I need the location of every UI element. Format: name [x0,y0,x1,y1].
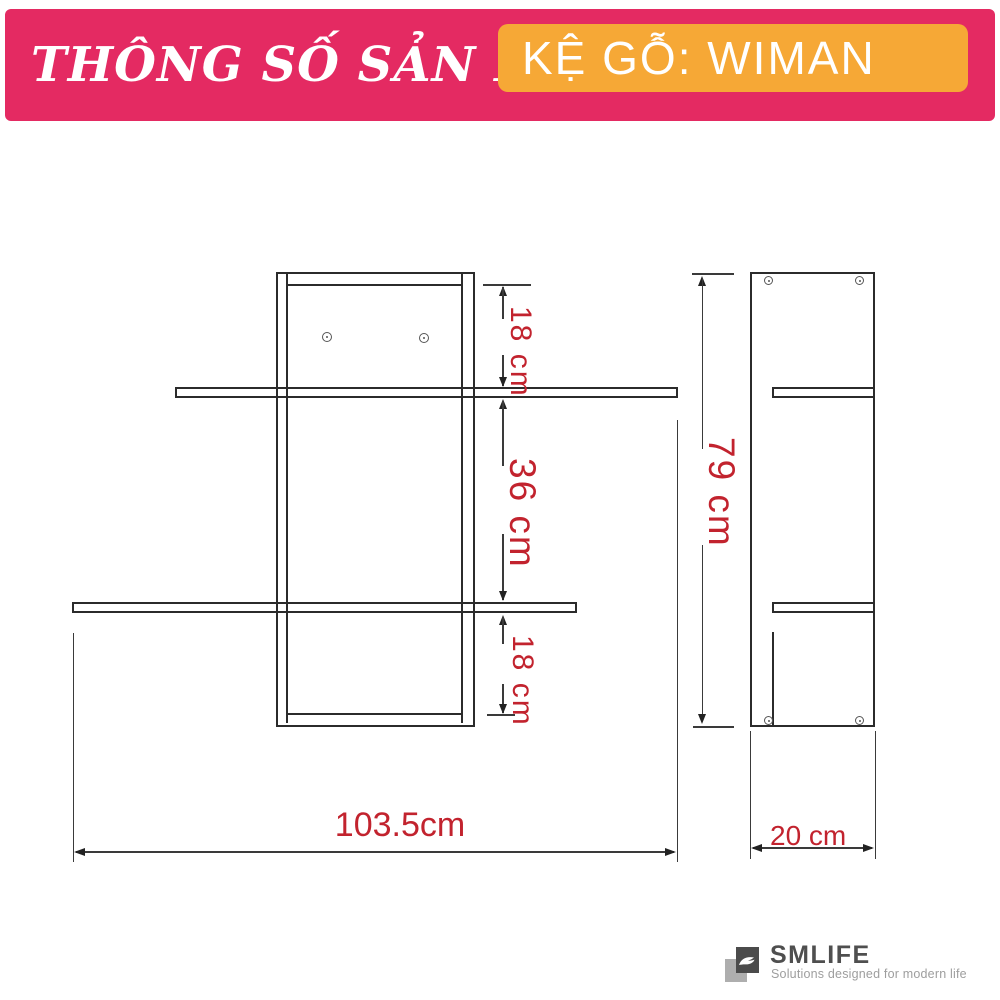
dim-tick [692,273,734,275]
front-top-inner-line [288,284,461,286]
dim-arrow-down [499,591,507,601]
dim-extension-line [677,420,679,862]
brand-logo-mark [736,947,759,973]
dim-line [502,617,504,644]
header-band: THÔNG SỐ SẢN PHẨM KỆ GỖ: WIMAN [5,9,995,121]
dim-arrow-right [665,848,676,856]
product-name-badge: KỆ GỖ: WIMAN [498,24,968,92]
screw-hole [764,716,773,725]
screw-hole [855,716,864,725]
dim-line [702,545,704,715]
side-inner-edge-line [772,632,774,725]
brand-tagline: Solutions designed for modern life [771,967,967,981]
front-right-panel-inner-line [461,274,463,723]
dim-label-middle-section: 36 cm [501,458,543,569]
dim-tick [483,284,531,286]
dim-line [76,851,674,853]
front-view-frame [276,272,475,727]
side-upper-shelf [772,387,875,398]
front-lower-shelf [72,602,577,613]
front-bottom-inner-line [288,713,461,715]
side-view-panel [750,272,875,727]
dim-extension-line [875,731,877,859]
dim-extension-line [73,633,75,862]
dim-arrow-right [863,844,874,852]
screw-hole [855,276,864,285]
dim-label-height: 79 cm [700,437,742,548]
front-left-panel-inner-line [286,274,288,723]
brand-name: SMLIFE [770,941,871,970]
product-spec-sheet: THÔNG SỐ SẢN PHẨM KỆ GỖ: WIMAN 18 cm 36 … [0,0,1000,1000]
dim-line [702,278,704,449]
dim-label-top-section: 18 cm [503,306,537,398]
dim-label-depth: 20 cm [770,820,846,852]
dim-label-bottom-section: 18 cm [505,635,539,727]
screw-hole [419,333,429,343]
dim-extension-line [750,731,752,859]
screw-hole [764,276,773,285]
dim-label-width: 103.5cm [287,806,513,845]
side-lower-shelf [772,602,875,613]
dim-arrow-down [698,714,706,724]
dim-line [502,401,504,466]
dim-arrow-left [74,848,85,856]
dim-tick [693,726,734,728]
dolphin-icon [738,952,757,968]
screw-hole [322,332,332,342]
dim-arrow-left [751,844,762,852]
front-upper-shelf [175,387,678,398]
product-name-label: KỆ GỖ: WIMAN [498,31,876,85]
